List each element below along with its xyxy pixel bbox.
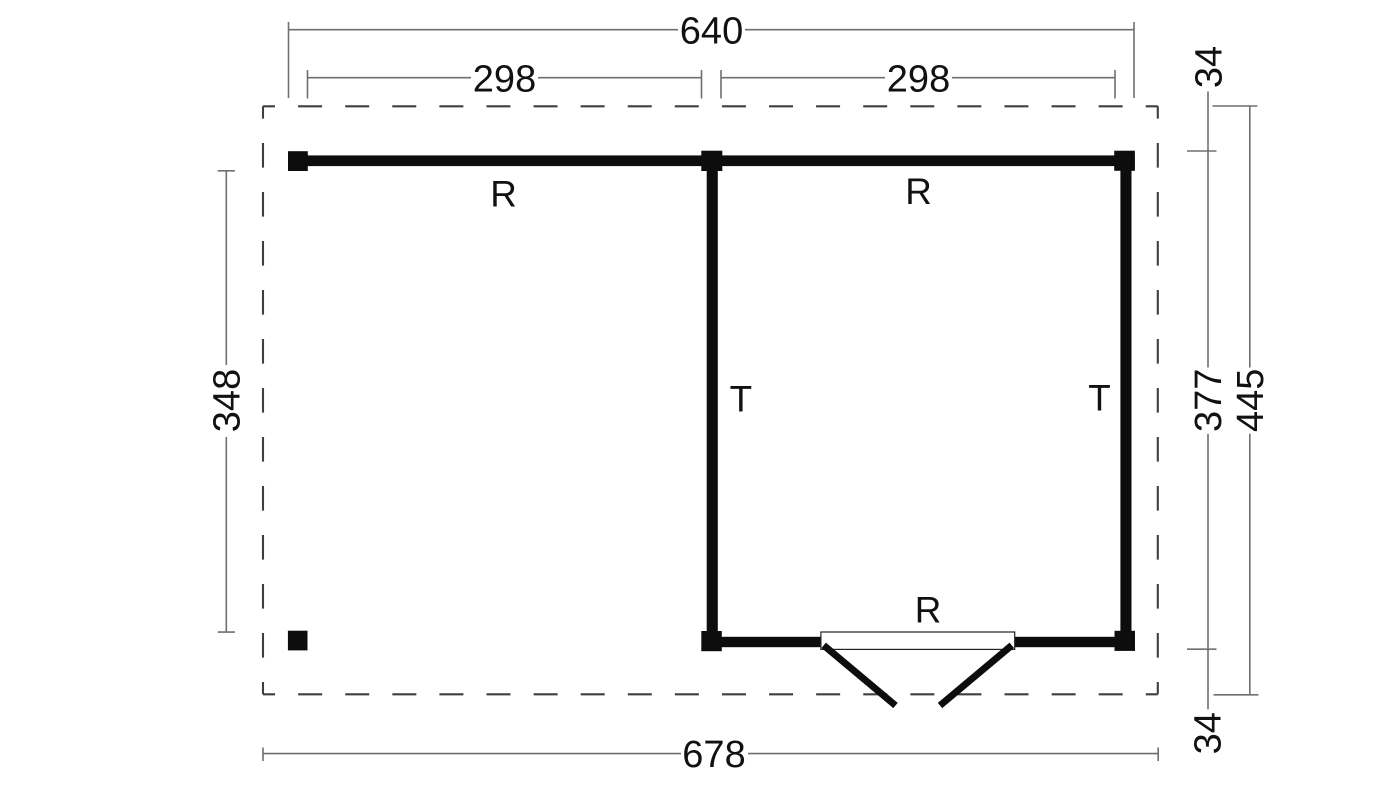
svg-text:R: R — [915, 589, 942, 630]
svg-text:298: 298 — [473, 58, 536, 100]
svg-text:377: 377 — [1188, 369, 1230, 432]
svg-text:298: 298 — [887, 58, 950, 100]
svg-text:445: 445 — [1230, 369, 1272, 432]
svg-text:34: 34 — [1187, 712, 1229, 754]
svg-text:T: T — [730, 379, 752, 420]
svg-text:678: 678 — [682, 734, 745, 776]
svg-text:T: T — [1088, 377, 1110, 418]
svg-text:R: R — [905, 171, 932, 212]
svg-text:R: R — [490, 173, 517, 214]
svg-text:640: 640 — [680, 11, 743, 53]
svg-text:348: 348 — [207, 369, 249, 432]
svg-text:34: 34 — [1189, 46, 1231, 88]
